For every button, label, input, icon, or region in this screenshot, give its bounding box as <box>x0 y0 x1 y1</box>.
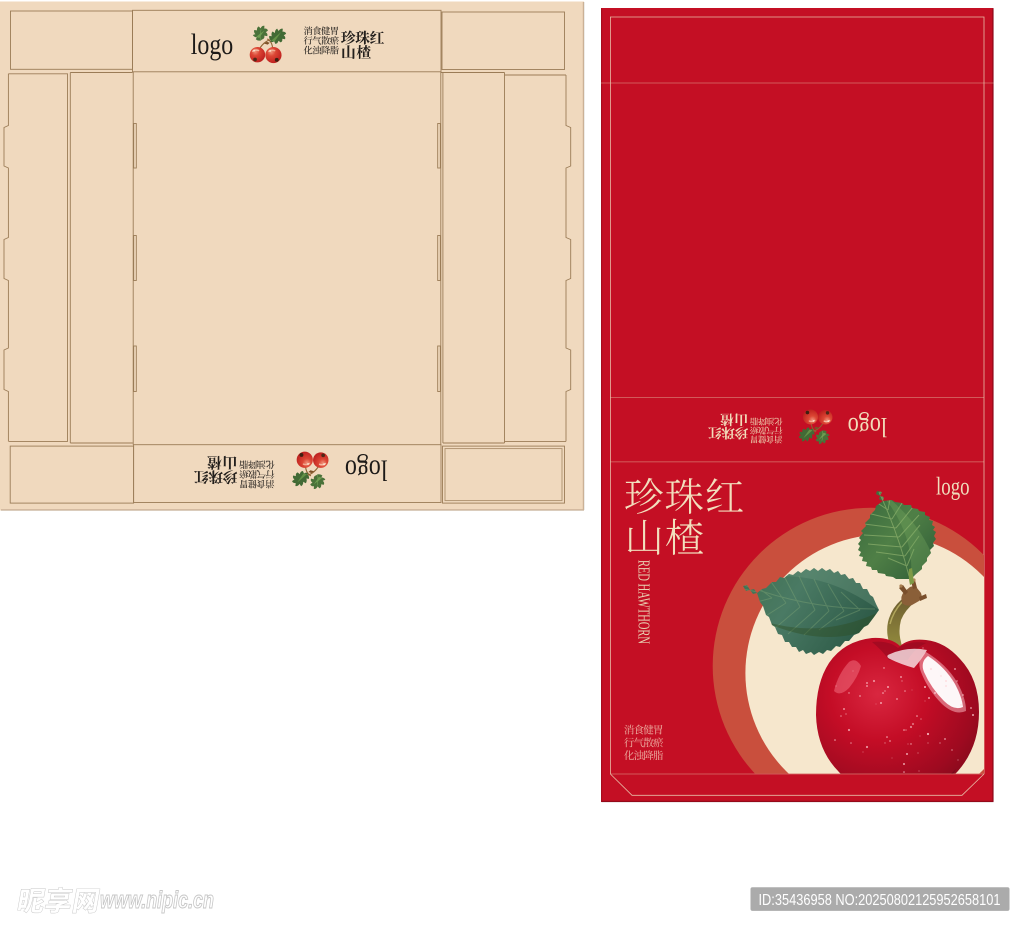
svg-text:RED HAWTHORN: RED HAWTHORN <box>634 560 653 644</box>
svg-text:www.nipic.cn: www.nipic.cn <box>100 887 214 914</box>
svg-text:logo: logo <box>191 28 234 61</box>
svg-text:logo: logo <box>848 411 887 442</box>
svg-text:logo: logo <box>936 473 970 500</box>
svg-text:logo: logo <box>345 454 388 487</box>
svg-text:ID:35436958 NO:202508021259526: ID:35436958 NO:20250802125952658101 <box>759 892 1001 909</box>
